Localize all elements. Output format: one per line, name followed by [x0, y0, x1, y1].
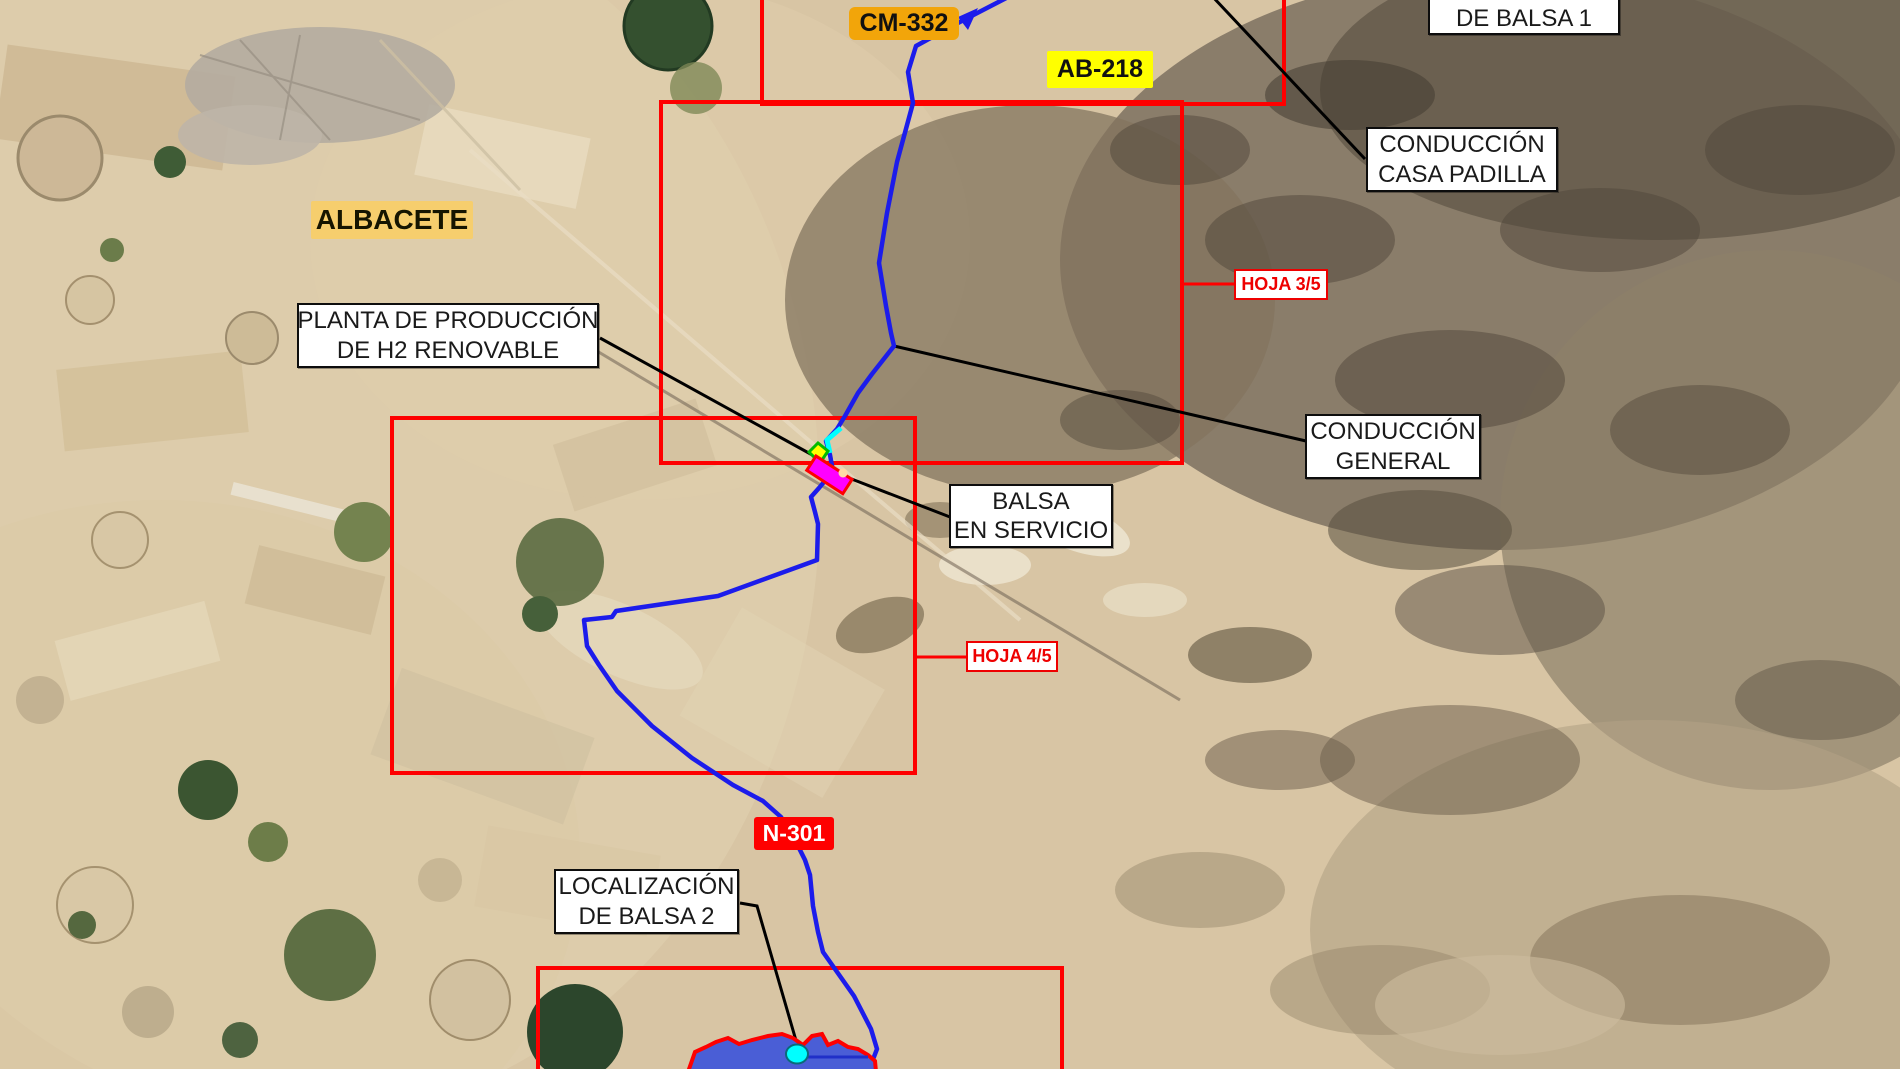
sheet-label-hoja4-text: HOJA 4/5	[972, 646, 1051, 667]
callout-balsa2-line2: DE BALSA 2	[578, 902, 714, 931]
city-label-albacete: ALBACETE	[311, 201, 473, 239]
callout-planta-h2: PLANTA DE PRODUCCIÓN DE H2 RENOVABLE	[297, 303, 599, 368]
sheet-label-hoja4: HOJA 4/5	[966, 641, 1058, 672]
callout-planta-line1: PLANTA DE PRODUCCIÓN	[298, 306, 599, 335]
balsa2-point-marker	[786, 1045, 808, 1064]
road-label-cm332: CM-332	[849, 7, 959, 40]
callout-casa-padilla-line1: CONDUCCIÓN	[1379, 130, 1544, 159]
road-label-n301-text: N-301	[763, 820, 826, 847]
callout-planta-line2: DE H2 RENOVABLE	[337, 336, 559, 365]
callout-balsa2-line1: LOCALIZACIÓN	[558, 872, 734, 901]
sheet-label-hoja3: HOJA 3/5	[1234, 269, 1328, 300]
callout-localizacion-balsa2: LOCALIZACIÓN DE BALSA 2	[554, 869, 739, 934]
callout-conduccion-casa-padilla: CONDUCCIÓN CASA PADILLA	[1366, 127, 1558, 192]
site-dot	[839, 469, 848, 478]
callout-localizacion-balsa1: LOCALIZACIÓN DE BALSA 1	[1428, 0, 1620, 35]
sheet-label-hoja3-text: HOJA 3/5	[1241, 274, 1320, 295]
road-label-cm332-text: CM-332	[860, 9, 949, 38]
road-label-ab218-text: AB-218	[1057, 55, 1143, 84]
callout-conduccion-general: CONDUCCIÓN GENERAL	[1305, 414, 1481, 479]
callout-balsa1-line2: DE BALSA 1	[1456, 4, 1592, 33]
callout-conduccion-general-line2: GENERAL	[1336, 447, 1451, 476]
callout-casa-padilla-line2: CASA PADILLA	[1378, 160, 1546, 189]
road-label-ab218: AB-218	[1047, 51, 1153, 88]
callout-balsa-en-servicio: BALSA EN SERVICIO	[949, 484, 1113, 548]
callout-conduccion-general-line1: CONDUCCIÓN	[1310, 417, 1475, 446]
callout-balsa-servicio-line2: EN SERVICIO	[954, 516, 1108, 545]
callout-balsa-servicio-line1: BALSA	[992, 487, 1069, 516]
city-label-albacete-text: ALBACETE	[316, 204, 468, 236]
map-viewport: CM-332 AB-218 LOCALIZACIÓN DE BALSA 1 CO…	[0, 0, 1900, 1069]
road-label-n301: N-301	[754, 817, 834, 850]
